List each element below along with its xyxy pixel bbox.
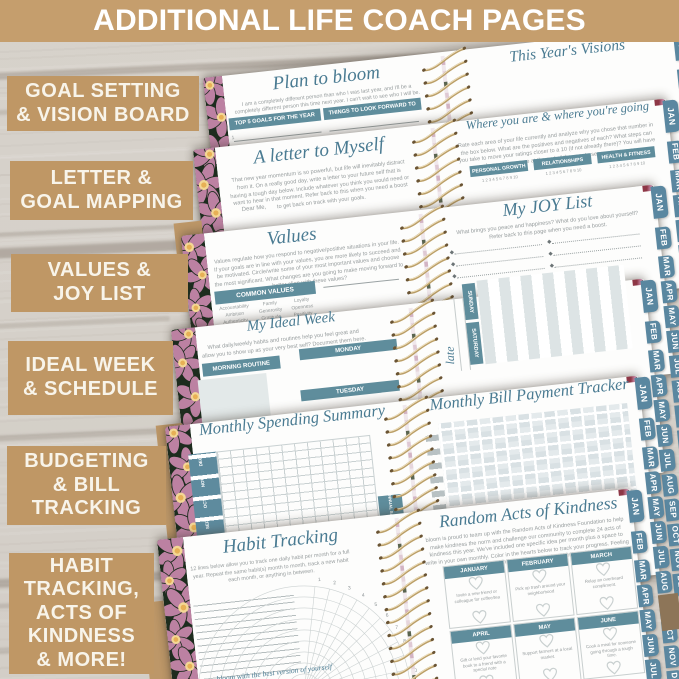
svg-text:3: 3 — [348, 585, 352, 591]
svg-text:5: 5 — [374, 602, 378, 608]
svg-text:4: 4 — [362, 593, 366, 599]
svg-text:1: 1 — [318, 577, 322, 583]
svg-text:2: 2 — [333, 580, 337, 586]
